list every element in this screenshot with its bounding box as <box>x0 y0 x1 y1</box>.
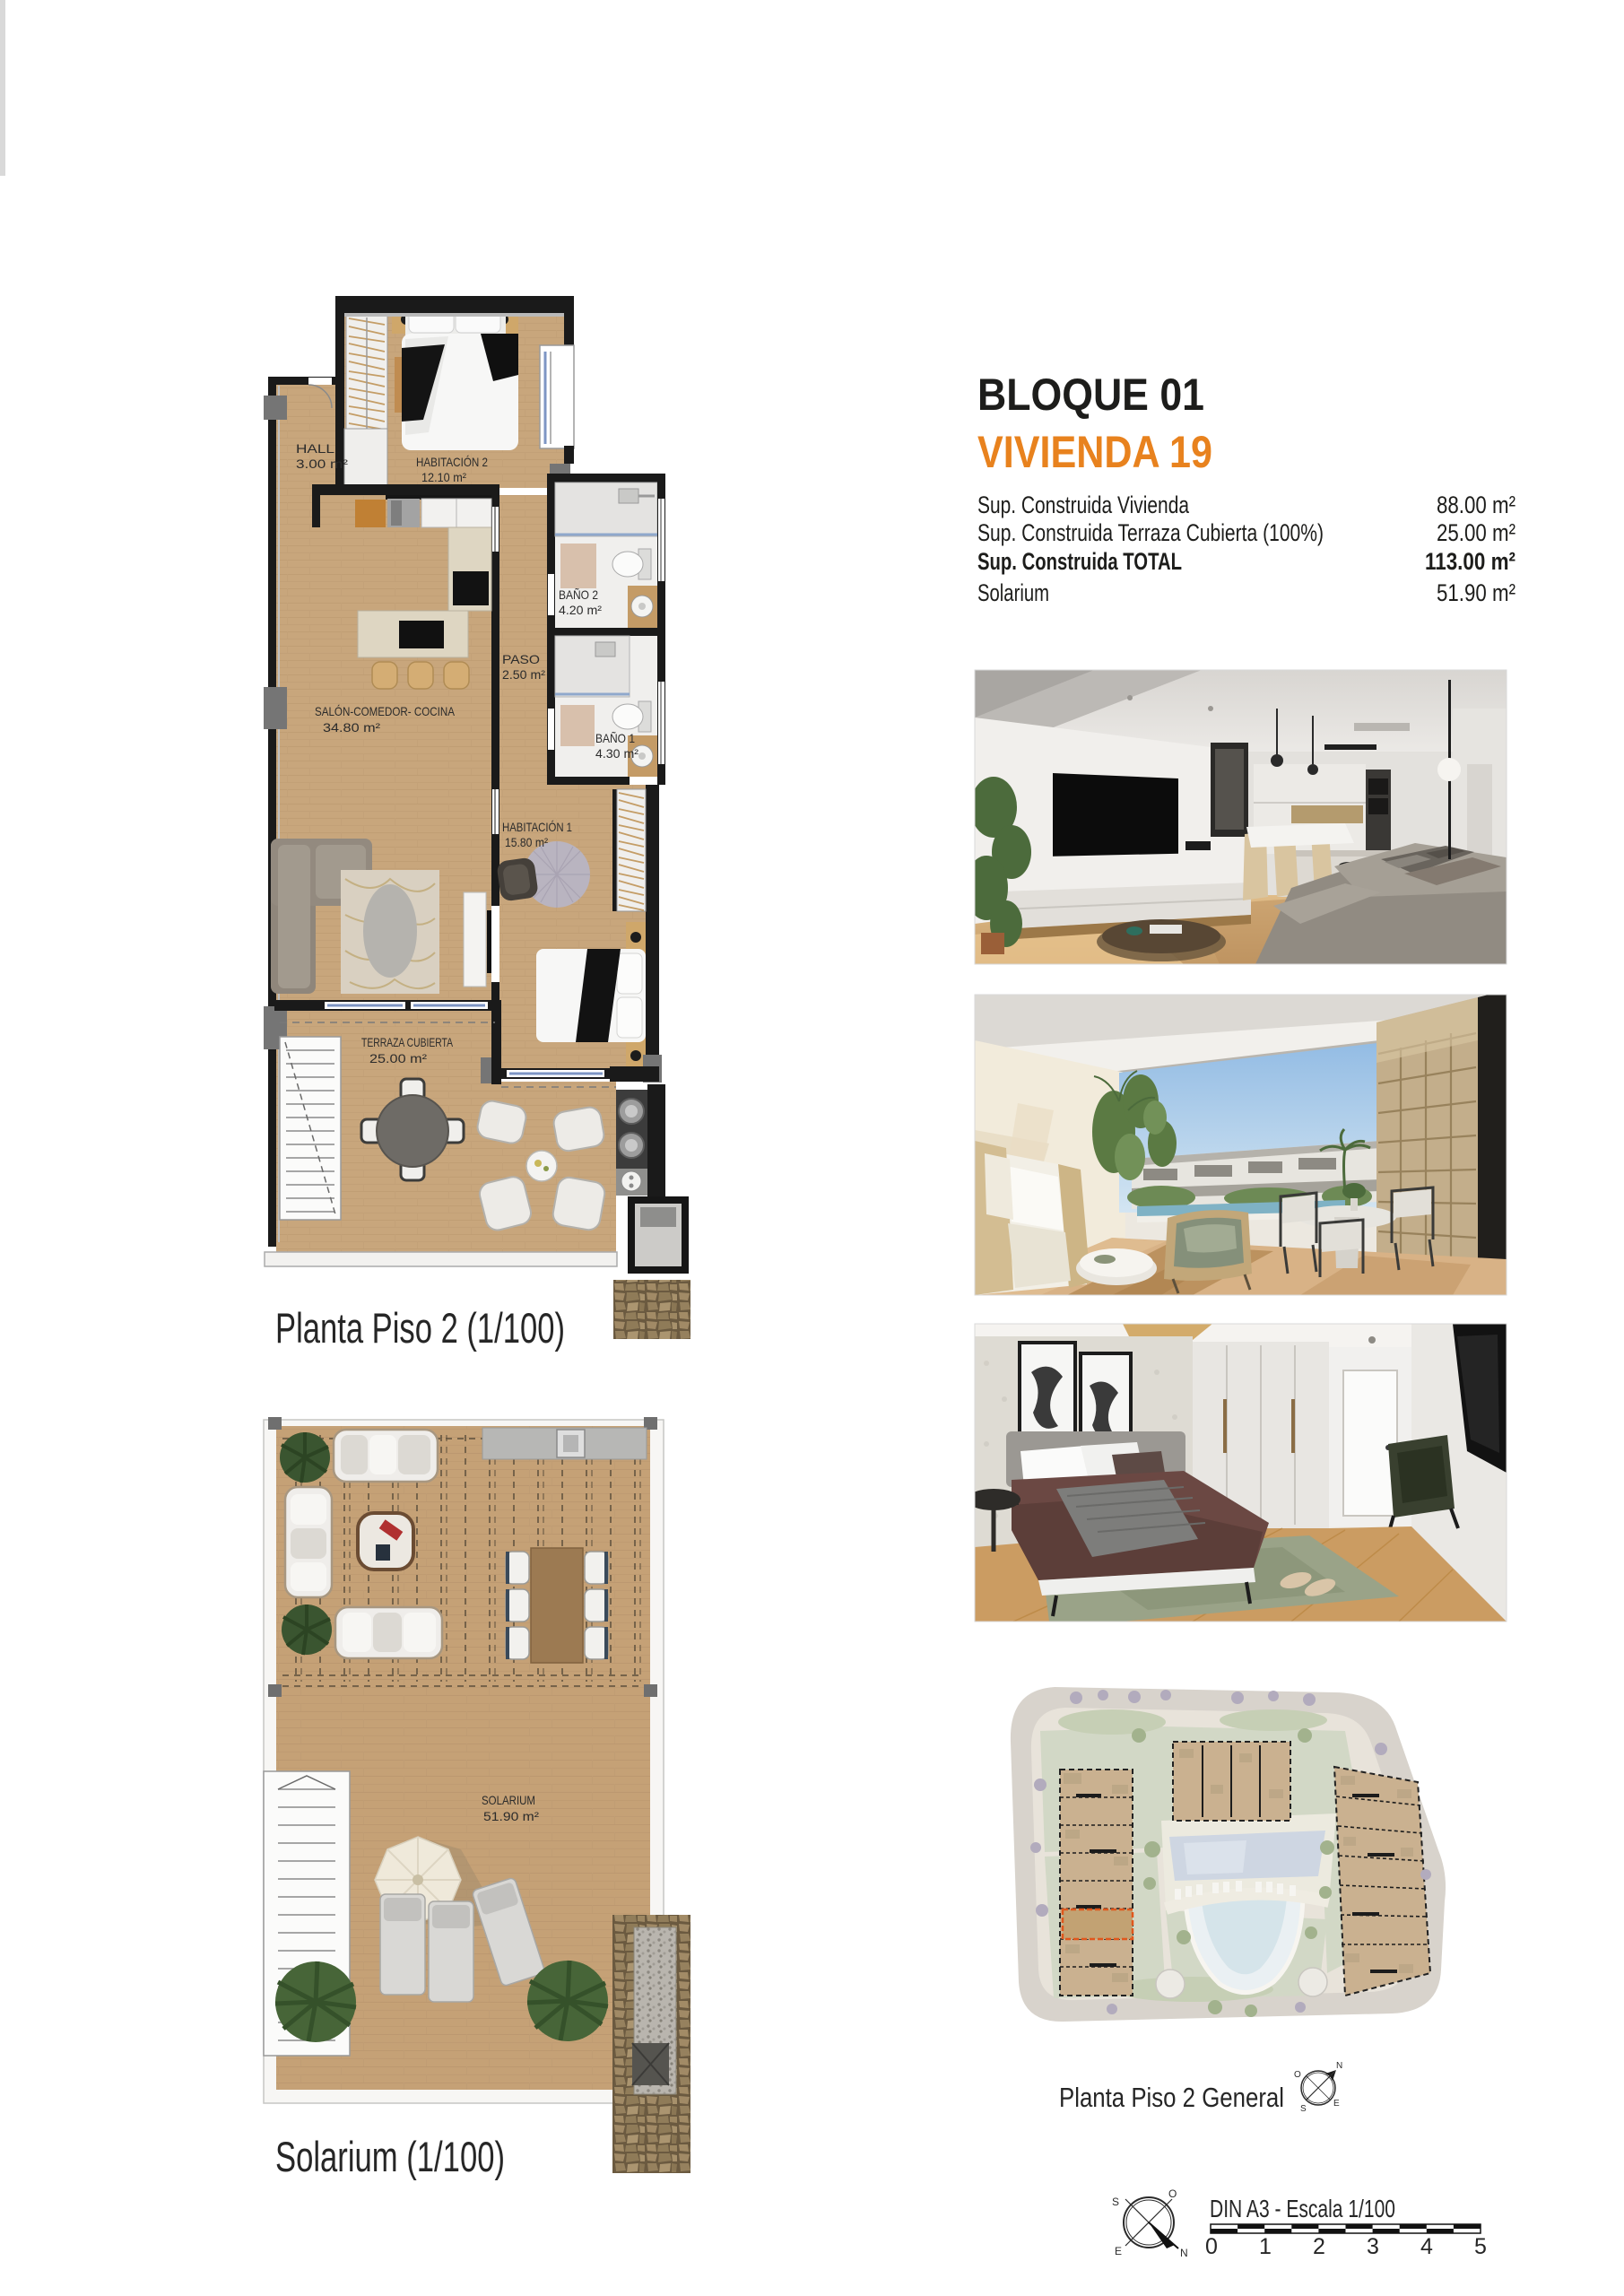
svg-text:Sup. Construida TOTAL: Sup. Construida TOTAL <box>977 548 1182 575</box>
svg-text:12.10 m²: 12.10 m² <box>421 470 466 484</box>
svg-text:4.20 m²: 4.20 m² <box>559 603 602 617</box>
svg-text:BAÑO 1: BAÑO 1 <box>595 731 635 745</box>
svg-text:3: 3 <box>1367 2234 1379 2259</box>
svg-text:SOLARIUM: SOLARIUM <box>482 1793 535 1807</box>
svg-text:3.00 m²: 3.00 m² <box>296 457 348 471</box>
svg-text:O: O <box>1294 2070 1301 2080</box>
svg-text:Solarium (1/100): Solarium (1/100) <box>275 2133 505 2180</box>
svg-text:113.00 m²: 113.00 m² <box>1425 548 1515 575</box>
svg-text:S: S <box>1300 2104 1307 2114</box>
svg-text:PASO: PASO <box>502 652 540 666</box>
svg-text:51.90 m²: 51.90 m² <box>483 1809 539 1823</box>
svg-text:E: E <box>1333 2099 1340 2109</box>
svg-text:BLOQUE 01: BLOQUE 01 <box>977 370 1204 420</box>
svg-text:34.80 m²: 34.80 m² <box>323 720 380 735</box>
svg-text:S: S <box>1112 2196 1119 2208</box>
svg-text:N: N <box>1180 2247 1188 2259</box>
svg-text:Solarium: Solarium <box>977 579 1049 606</box>
svg-text:0: 0 <box>1205 2234 1218 2259</box>
svg-text:4: 4 <box>1420 2234 1433 2259</box>
svg-text:E: E <box>1115 2245 1122 2257</box>
svg-text:51.90 m²: 51.90 m² <box>1437 579 1515 606</box>
svg-text:HABITACIÓN 1: HABITACIÓN 1 <box>502 820 572 834</box>
svg-text:25.00 m²: 25.00 m² <box>1437 519 1515 546</box>
svg-text:BAÑO 2: BAÑO 2 <box>559 587 598 602</box>
svg-text:25.00 m²: 25.00 m² <box>369 1051 427 1065</box>
svg-text:O: O <box>1168 2187 1177 2200</box>
svg-text:DIN A3 - Escala 1/100: DIN A3 - Escala 1/100 <box>1210 2195 1395 2222</box>
svg-text:4.30 m²: 4.30 m² <box>595 746 638 761</box>
svg-text:SALÓN-COMEDOR- COCINA: SALÓN-COMEDOR- COCINA <box>315 704 456 718</box>
svg-text:HABITACIÓN 2: HABITACIÓN 2 <box>416 455 488 469</box>
svg-text:Planta Piso 2 (1/100): Planta Piso 2 (1/100) <box>275 1304 565 1352</box>
svg-text:1: 1 <box>1259 2234 1272 2259</box>
svg-text:88.00 m²: 88.00 m² <box>1437 491 1515 518</box>
svg-text:N: N <box>1336 2061 1342 2071</box>
svg-text:Sup. Construida Vivienda: Sup. Construida Vivienda <box>977 491 1190 518</box>
svg-text:2.50 m²: 2.50 m² <box>502 667 545 682</box>
svg-text:HALL: HALL <box>296 441 334 456</box>
svg-text:5: 5 <box>1474 2234 1487 2259</box>
svg-text:Planta Piso 2 General: Planta Piso 2 General <box>1059 2082 1284 2113</box>
svg-text:2: 2 <box>1313 2234 1325 2259</box>
svg-text:VIVIENDA 19: VIVIENDA 19 <box>977 427 1212 477</box>
svg-text:TERRAZA CUBIERTA: TERRAZA CUBIERTA <box>361 1035 453 1049</box>
svg-text:15.80 m²: 15.80 m² <box>505 835 548 849</box>
svg-text:Sup. Construida Terraza Cubier: Sup. Construida Terraza Cubierta (100%) <box>977 519 1324 546</box>
